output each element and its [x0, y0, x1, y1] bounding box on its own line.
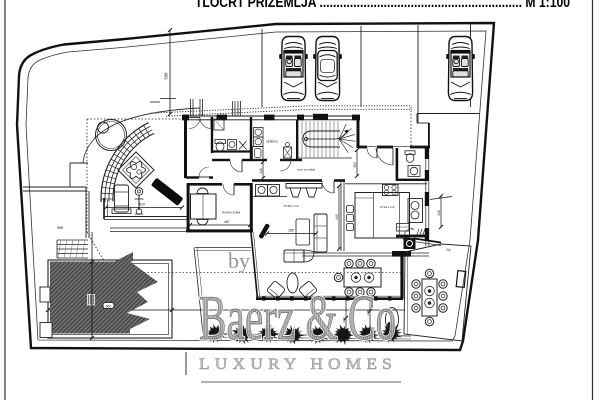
- svg-text:LUXURY HOMES: LUXURY HOMES: [199, 356, 397, 373]
- svg-text:440: 440: [335, 214, 339, 220]
- svg-text:RADNA SOBA: RADNA SOBA: [222, 211, 240, 215]
- svg-text:201: 201: [446, 248, 452, 253]
- svg-text:240: 240: [437, 210, 441, 216]
- svg-text:P=14,1 m2: P=14,1 m2: [380, 205, 395, 209]
- svg-text:510: 510: [139, 203, 145, 207]
- svg-text:140: 140: [259, 168, 263, 174]
- svg-text:otvor za natkje: otvor za natkje: [297, 168, 316, 172]
- svg-text:598: 598: [57, 226, 63, 230]
- svg-text:by: by: [228, 248, 250, 273]
- svg-text:Baerz & Co: Baerz & Co: [199, 283, 396, 353]
- svg-text:203: 203: [353, 162, 357, 168]
- svg-text:285: 285: [288, 229, 294, 233]
- svg-text:P=60,7 m2: P=60,7 m2: [284, 204, 299, 208]
- svg-text:TLOCRT PRIZEMLJA .............: TLOCRT PRIZEMLJA .......................…: [195, 0, 570, 11]
- svg-text:440: 440: [224, 220, 230, 224]
- svg-text:598: 598: [164, 72, 169, 80]
- svg-text:600: 600: [106, 304, 112, 308]
